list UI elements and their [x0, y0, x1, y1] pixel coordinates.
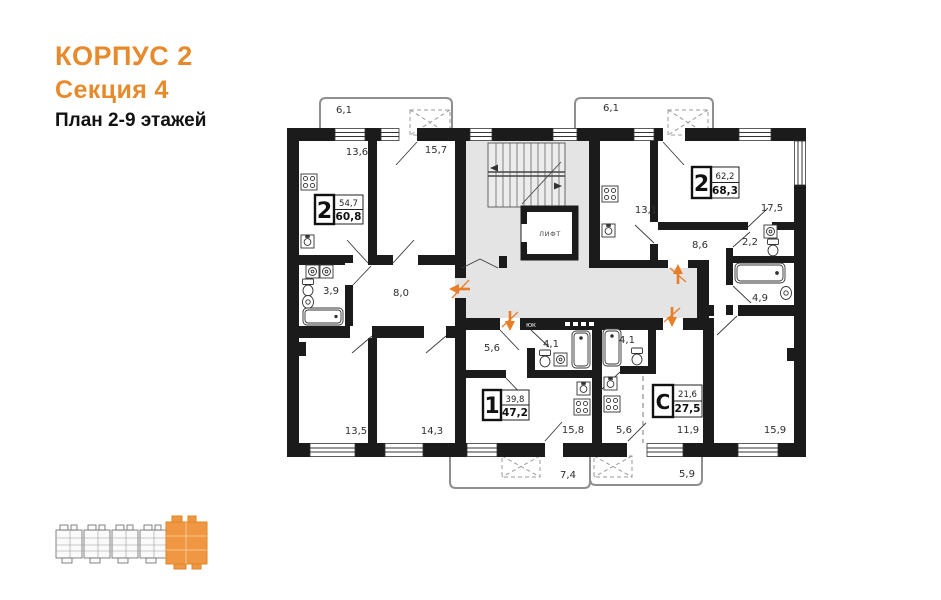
area-room-studio: 11,9 — [677, 425, 699, 436]
apartment-area-top: 39,8 — [506, 395, 525, 405]
window-icon — [467, 444, 497, 457]
apartment-rooms-count: С — [656, 390, 671, 414]
area-kitchen-left: 13,6 — [346, 147, 368, 158]
washing-machine-icon — [764, 225, 777, 238]
window-icon — [335, 129, 365, 141]
area-bath-left: 3,9 — [323, 286, 339, 297]
bathtub-icon — [303, 308, 343, 325]
area-bath-right: 4,9 — [752, 293, 768, 304]
area-hall-apt1: 5,6 — [484, 343, 500, 354]
area-balcony-bottom-left: 7,4 — [560, 470, 576, 481]
washing-machine-icon — [306, 265, 319, 278]
window-icon — [553, 129, 577, 141]
ac-box-icon — [594, 456, 632, 477]
toilet-icon — [768, 239, 779, 256]
toilet-icon — [632, 348, 643, 365]
stove-icon — [602, 186, 618, 202]
apartment-area-top: 62,2 — [716, 172, 735, 182]
apartment-card-2-right: 2 62,2 68,3 — [692, 167, 739, 198]
bathroom-sink-icon — [303, 296, 314, 309]
toilet-icon — [540, 350, 551, 367]
washing-machine-icon — [320, 265, 333, 278]
washing-machine-icon — [554, 353, 567, 366]
current-section-highlight — [166, 516, 207, 569]
area-bath-apt1: 4,1 — [543, 339, 559, 350]
apartment-area-bottom: 47,2 — [502, 407, 528, 419]
bathroom-sink-icon — [781, 287, 792, 300]
area-balcony-top-right: 6,1 — [603, 103, 619, 114]
page: КОРПУС 2 Секция 4 План 2-9 этажей — [0, 0, 941, 600]
apartment-area-bottom: 60,8 — [336, 211, 362, 223]
apartment-card-1: 1 39,8 47,2 — [483, 390, 529, 420]
window-icon — [634, 129, 654, 141]
window-icon — [647, 444, 683, 457]
ac-box-icon — [502, 456, 540, 477]
area-kitchen-apt1: 15,8 — [562, 425, 584, 436]
apartment-area-bottom: 68,3 — [712, 185, 738, 197]
toilet-icon — [303, 279, 314, 296]
staircase — [488, 143, 565, 207]
area-kitchen-studio: 5,6 — [616, 425, 632, 436]
bathtub-icon — [572, 331, 590, 368]
window-icon — [470, 129, 492, 141]
area-room-top-left: 15,7 — [425, 145, 447, 156]
apartment-card-studio: С 21,6 27,5 — [653, 385, 702, 417]
area-balcony-bottom-right: 5,9 — [679, 469, 695, 480]
apartment-area-top: 21,6 — [678, 390, 697, 400]
area-hall-left: 8,0 — [393, 288, 409, 299]
area-room-bottom-left: 13,5 — [345, 426, 367, 437]
kitchen-sink-icon — [604, 377, 617, 390]
window-icon — [310, 444, 355, 457]
elevator: ЛИФТ — [521, 206, 578, 260]
kitchen-sink-icon — [602, 224, 615, 237]
apartment-area-top: 54,7 — [339, 199, 358, 209]
kitchen-sink-icon — [301, 235, 314, 248]
area-room-bottom-right: 15,9 — [764, 425, 786, 436]
apartment-rooms-count: 2 — [317, 199, 332, 224]
window-icon — [738, 444, 778, 457]
apartment-area-bottom: 27,5 — [675, 403, 701, 415]
area-kitchen-right: 13,1 — [635, 205, 657, 216]
apartment-rooms-count: 2 — [694, 172, 709, 197]
apartment-rooms-count: 1 — [484, 394, 499, 419]
window-icon — [385, 444, 423, 457]
window-icon — [739, 129, 771, 141]
area-hall-right: 8,6 — [692, 240, 708, 251]
building-overview-map — [56, 516, 207, 569]
duct-label: ЮК — [526, 323, 536, 329]
area-room-top-right: 17,5 — [761, 203, 783, 214]
floor-plan-image: ЛИФТ — [0, 0, 941, 600]
area-wc-right: 2,2 — [742, 237, 758, 248]
stove-icon — [604, 396, 620, 412]
bathtub-icon — [735, 263, 785, 283]
area-room-bottom-mid: 14,3 — [421, 426, 443, 437]
area-balcony-top-left: 6,1 — [336, 105, 352, 116]
apartment-card-2-left: 2 54,7 60,8 — [315, 195, 363, 224]
stove-icon — [301, 174, 317, 190]
area-bath-studio: 4,1 — [619, 335, 635, 346]
window-icon — [381, 129, 399, 141]
elevator-label: ЛИФТ — [539, 230, 561, 238]
stove-icon — [574, 399, 590, 415]
kitchen-sink-icon — [577, 382, 590, 395]
window-icon — [795, 141, 806, 185]
